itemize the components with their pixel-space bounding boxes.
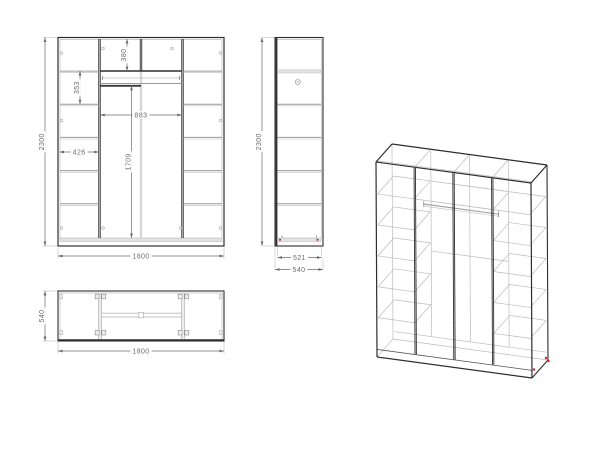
front-dim-middle-width: 883 xyxy=(135,112,148,119)
front-view: 230018003803538834261709 xyxy=(37,38,224,261)
top-view: 5401800 xyxy=(37,291,224,355)
front-dim-shelf-gap: 353 xyxy=(74,81,81,94)
front-dim-left-width: 426 xyxy=(73,149,86,156)
isometric-view xyxy=(376,144,550,378)
wardrobe-technical-drawing: 2300180038035388342617092300521540540180… xyxy=(0,0,600,452)
top-dim-width: 1800 xyxy=(132,348,149,355)
top-dim-depth: 540 xyxy=(39,310,46,323)
side-view: 2300521540 xyxy=(254,38,323,274)
front-dim-middle-height: 1709 xyxy=(125,153,132,170)
front-dim-width: 1800 xyxy=(132,253,149,260)
side-dim-depth: 540 xyxy=(293,267,306,274)
front-dim-top-gap: 380 xyxy=(121,49,128,62)
side-dim-height: 2300 xyxy=(256,133,263,150)
side-dim-inner-depth: 521 xyxy=(293,255,306,262)
drawing-canvas: 2300180038035388342617092300521540540180… xyxy=(0,0,600,452)
front-dim-height: 2300 xyxy=(39,133,46,150)
